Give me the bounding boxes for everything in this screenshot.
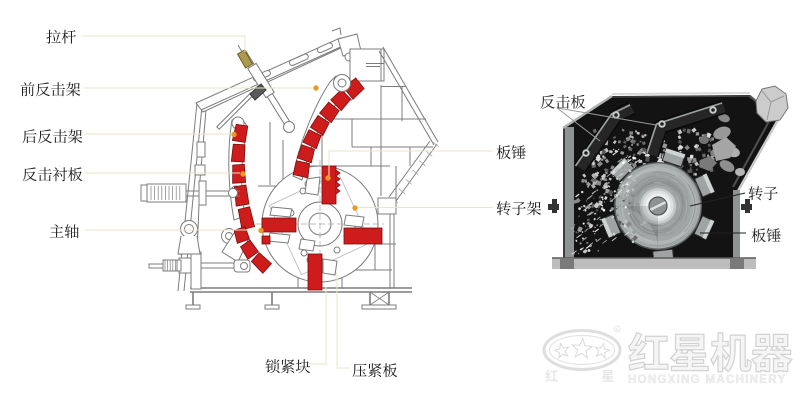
- svg-text:HONGXING MACHINERY: HONGXING MACHINERY: [628, 374, 786, 386]
- svg-text:R: R: [616, 327, 619, 332]
